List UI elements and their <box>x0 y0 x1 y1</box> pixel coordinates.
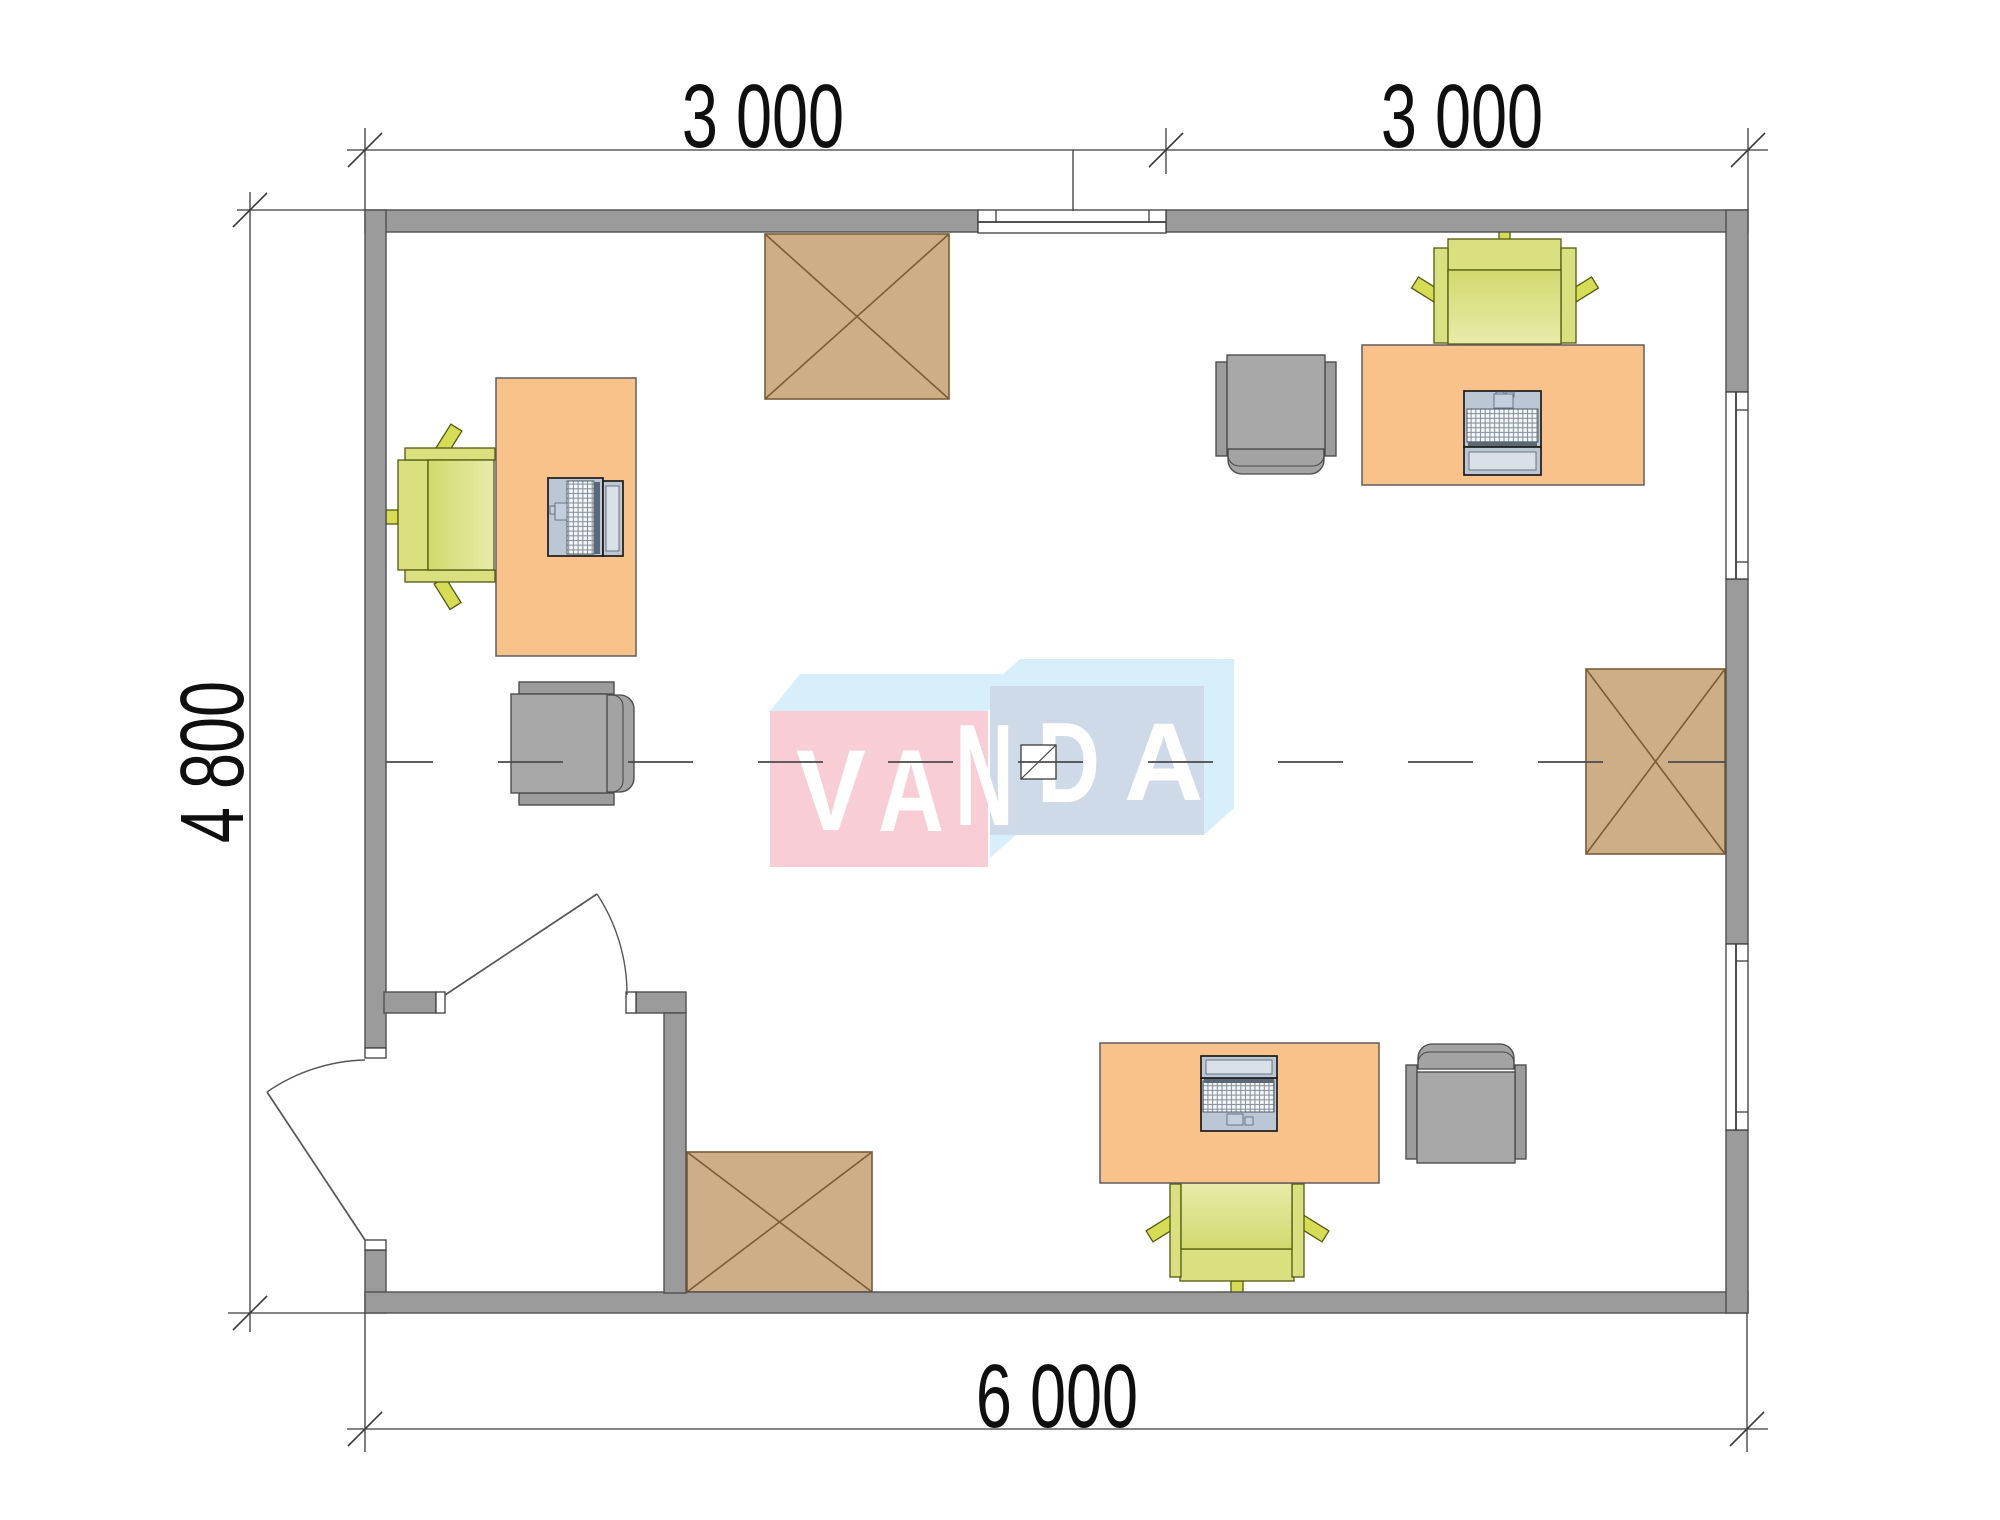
svg-text:V: V <box>796 726 866 855</box>
svg-text:6 000: 6 000 <box>976 1346 1138 1447</box>
svg-text:3 000: 3 000 <box>682 66 844 167</box>
svg-text:A: A <box>878 726 944 856</box>
svg-text:4 800: 4 800 <box>162 681 263 843</box>
svg-text:3 000: 3 000 <box>1381 66 1543 167</box>
svg-text:N: N <box>955 694 1014 856</box>
